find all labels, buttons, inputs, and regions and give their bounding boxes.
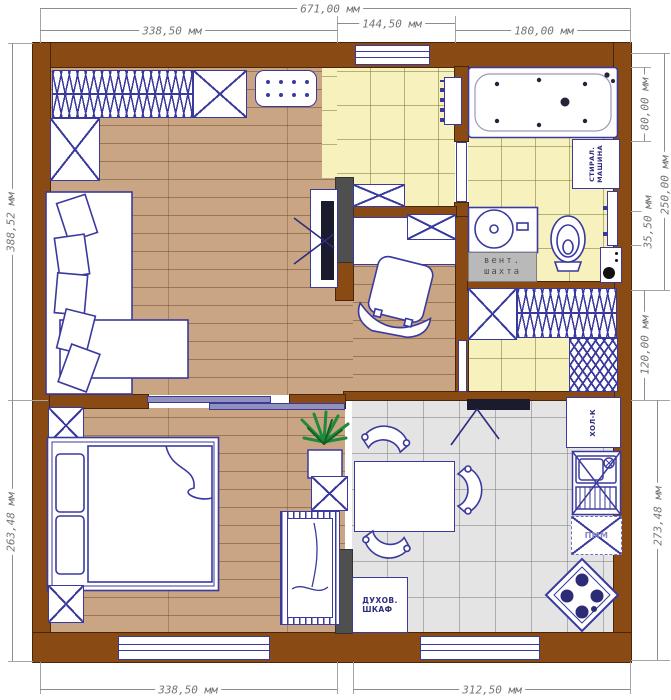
wardrobe-cabinet: [193, 70, 247, 118]
office-chair: [350, 256, 446, 348]
crib-blanket-icon: [288, 519, 332, 617]
fridge: ХОЛ-К: [566, 397, 621, 448]
kitchen-chair-bottom: [358, 518, 414, 574]
crib-mattress: [287, 518, 333, 618]
dim-right-bath: 80,00 мм: [639, 75, 652, 134]
dishwasher: ПММ: [571, 516, 622, 555]
dim-top-middle: 144,50 мм: [359, 18, 425, 31]
ext-line: [630, 662, 631, 694]
vent-shaft: вент. шахта: [468, 252, 537, 282]
closet-cabinet: [468, 288, 517, 340]
vent-shaft-label-line2: шахта: [484, 267, 521, 278]
kitchen-tv-antenna-icon: [445, 405, 505, 447]
washing-machine: СТИРАЛ. МАШИНА: [572, 139, 620, 189]
radiator-knobs-icon: [603, 200, 608, 236]
nightstand-bottom: [48, 585, 84, 623]
ottoman: [255, 70, 317, 107]
dim-left-upper: 388,52 мм: [5, 189, 18, 255]
floor-plan: СТИРАЛ. МАШИНА вент. шахта: [0, 0, 671, 700]
kitchen-sink-unit: [571, 450, 622, 516]
towel-rack-hooks-icon: [440, 80, 445, 122]
kitchen-chair-right: [442, 462, 498, 518]
window-hall: [355, 45, 430, 65]
bathroom-door: [456, 142, 467, 202]
wardrobe-hanger-rack: [52, 70, 193, 118]
oven-label: ДУХОВ.ШКАФ: [362, 596, 398, 615]
ext-line: [8, 400, 48, 401]
ext-line: [8, 661, 33, 662]
washbasin: [467, 206, 539, 254]
dim-bottom-right: 312,50 мм: [459, 684, 525, 697]
dim-right-closet: 120,00 мм: [639, 312, 652, 378]
wall-shelf: [353, 184, 405, 207]
ext-line: [40, 8, 41, 43]
dishwasher-label: ПММ: [585, 531, 609, 541]
dim-top-right: 180,00 мм: [511, 25, 577, 38]
ext-line: [631, 290, 670, 291]
shoe-rack: [569, 338, 618, 392]
tv-antenna-icon: [292, 212, 336, 272]
dim-bottom-left: 338,50 мм: [155, 684, 221, 697]
stove: [542, 555, 622, 635]
dim-top-overall: 671,00 мм: [297, 3, 363, 16]
dim-left-lower: 263,48 мм: [5, 489, 18, 555]
panel-dot-small-2: [615, 259, 618, 262]
toilet: [545, 213, 591, 275]
kitchen-chair-top: [358, 410, 414, 466]
desk-drawer-unit: [407, 214, 456, 240]
panel-dot-small-1: [615, 252, 618, 255]
ext-line: [630, 8, 631, 43]
dim-top-left: 338,50 мм: [139, 25, 205, 38]
vent-shaft-label-line1: вент.: [484, 256, 521, 267]
plant: [296, 408, 352, 482]
ext-line: [631, 400, 670, 401]
oven: ДУХОВ.ШКАФ: [352, 577, 408, 633]
partition-tv: [336, 178, 353, 262]
fridge-label: ХОЛ-К: [589, 409, 598, 437]
dim-right-towel: 35,50 мм: [642, 193, 655, 252]
ext-line: [337, 662, 338, 694]
bathtub: [467, 66, 619, 139]
sliding-door-panel-1: [147, 396, 271, 403]
crib: [280, 511, 340, 625]
ottoman-buttons-icon: [256, 71, 315, 105]
dim-right-kitchen: 273,48 мм: [652, 483, 665, 549]
wall-top: [33, 43, 631, 67]
cabinet-living-left: [50, 118, 100, 181]
washing-machine-label: СТИРАЛ. МАШИНА: [588, 145, 604, 183]
hall-floor: [322, 67, 337, 178]
corner-sofa: [44, 190, 194, 396]
plant-cabinet: [311, 476, 348, 511]
closet-hanger-rack: [517, 288, 617, 338]
electric-panel: [600, 247, 622, 283]
ext-line: [631, 660, 670, 661]
ext-line: [631, 141, 651, 142]
kitchen-corridor-door: [458, 340, 467, 392]
dim-right-total: 250,00 мм: [659, 152, 671, 218]
double-bed: [46, 436, 220, 592]
ext-line: [631, 67, 651, 68]
ext-line: [337, 16, 338, 43]
panel-dot-large: [603, 267, 615, 279]
towel-rack-hall: [444, 77, 462, 125]
window-bedroom: [118, 636, 270, 660]
towel-radiator: [607, 191, 618, 246]
window-kitchen: [420, 636, 540, 660]
